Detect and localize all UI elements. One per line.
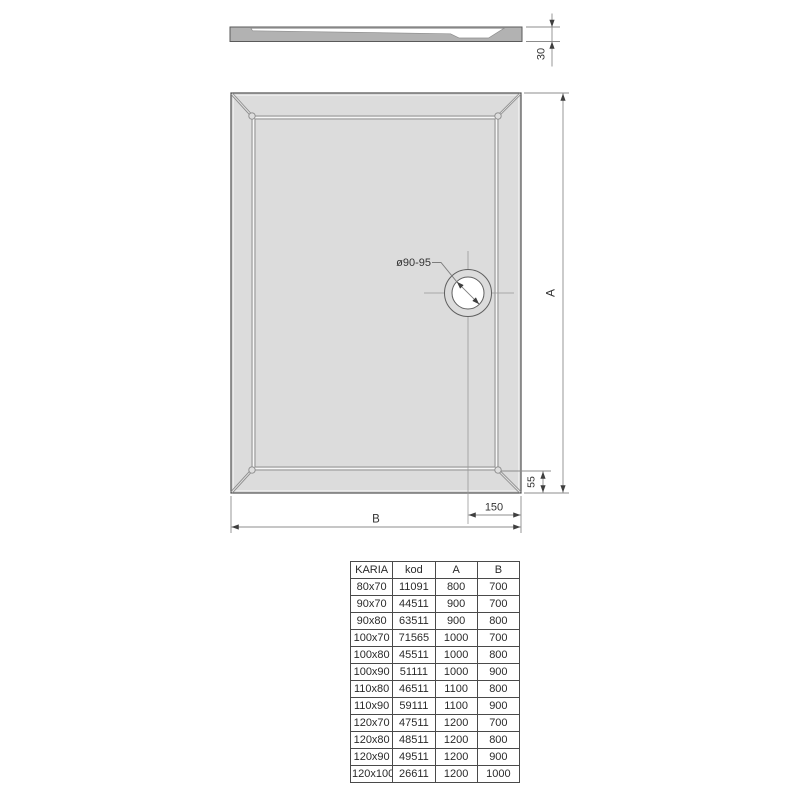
table-cell: 26611 — [393, 766, 435, 783]
table-row: 100x90511111000900 — [351, 664, 520, 681]
table-row: 80x7011091800700 — [351, 579, 520, 596]
table-cell: 110x90 — [351, 698, 393, 715]
table-cell: 100x70 — [351, 630, 393, 647]
table-cell: 11091 — [393, 579, 435, 596]
table-cell: 120x70 — [351, 715, 393, 732]
dim-label-A: A — [544, 289, 558, 297]
table-cell: 110x80 — [351, 681, 393, 698]
table-cell: 900 — [435, 596, 477, 613]
table-cell: 800 — [435, 579, 477, 596]
table-cell: 800 — [477, 681, 519, 698]
table-cell: 59111 — [393, 698, 435, 715]
table-cell: 48511 — [393, 732, 435, 749]
table-cell: 900 — [477, 698, 519, 715]
table-cell: 51111 — [393, 664, 435, 681]
table-cell: 44511 — [393, 596, 435, 613]
table-cell: 1200 — [435, 732, 477, 749]
table-row: 90x7044511900700 — [351, 596, 520, 613]
table-cell: 1100 — [435, 681, 477, 698]
table-cell: 1200 — [435, 749, 477, 766]
table-cell: 45511 — [393, 647, 435, 664]
table-cell: 63511 — [393, 613, 435, 630]
table-header-row: KARIAkodAB — [351, 562, 520, 579]
table-cell: 900 — [435, 613, 477, 630]
size-table: KARIAkodAB80x701109180070090x70445119007… — [350, 561, 520, 783]
table-cell: 90x70 — [351, 596, 393, 613]
table-row: 120x1002661112001000 — [351, 766, 520, 783]
table-cell: 800 — [477, 732, 519, 749]
table-cell: 1000 — [435, 630, 477, 647]
table-cell: 71565 — [393, 630, 435, 647]
table-cell: 700 — [477, 630, 519, 647]
technical-drawing-page: 30 — [0, 0, 800, 800]
table-cell: 1000 — [477, 766, 519, 783]
table-row: 110x90591111100900 — [351, 698, 520, 715]
table-cell: 100x80 — [351, 647, 393, 664]
table-cell: 120x90 — [351, 749, 393, 766]
table-cell: 800 — [477, 647, 519, 664]
table-header-cell: B — [477, 562, 519, 579]
table-cell: 80x70 — [351, 579, 393, 596]
table-cell: 49511 — [393, 749, 435, 766]
table-cell: 120x80 — [351, 732, 393, 749]
table-cell: 800 — [477, 613, 519, 630]
table-cell: 700 — [477, 596, 519, 613]
table-row: 120x90495111200900 — [351, 749, 520, 766]
dim-label-150: 150 — [485, 502, 503, 514]
table-cell: 1000 — [435, 664, 477, 681]
table-cell: 47511 — [393, 715, 435, 732]
table-row: 100x70715651000700 — [351, 630, 520, 647]
table-header-cell: A — [435, 562, 477, 579]
table-row: 120x80485111200800 — [351, 732, 520, 749]
table-header-cell: KARIA — [351, 562, 393, 579]
table-cell: 900 — [477, 664, 519, 681]
table-cell: 1100 — [435, 698, 477, 715]
dim-label-30: 30 — [536, 48, 548, 60]
table-row: 120x70475111200700 — [351, 715, 520, 732]
table-row: 100x80455111000800 — [351, 647, 520, 664]
dim-label-drain-diameter: ø90-95 — [396, 257, 431, 269]
dim-label-55: 55 — [526, 476, 538, 488]
dim-label-B: B — [372, 514, 380, 526]
table-header-cell: kod — [393, 562, 435, 579]
shower-tray-drawing: 30 — [0, 0, 800, 556]
table-row: 110x80465111100800 — [351, 681, 520, 698]
table-cell: 1200 — [435, 766, 477, 783]
table-cell: 120x100 — [351, 766, 393, 783]
table-cell: 1000 — [435, 647, 477, 664]
table-cell: 700 — [477, 579, 519, 596]
table-cell: 900 — [477, 749, 519, 766]
table-cell: 700 — [477, 715, 519, 732]
table-cell: 1200 — [435, 715, 477, 732]
table-row: 90x8063511900800 — [351, 613, 520, 630]
section-view: 30 — [230, 14, 560, 67]
table-cell: 90x80 — [351, 613, 393, 630]
table-cell: 100x90 — [351, 664, 393, 681]
table-cell: 46511 — [393, 681, 435, 698]
plan-view: ø90-95 A 55 150 — [231, 93, 569, 533]
